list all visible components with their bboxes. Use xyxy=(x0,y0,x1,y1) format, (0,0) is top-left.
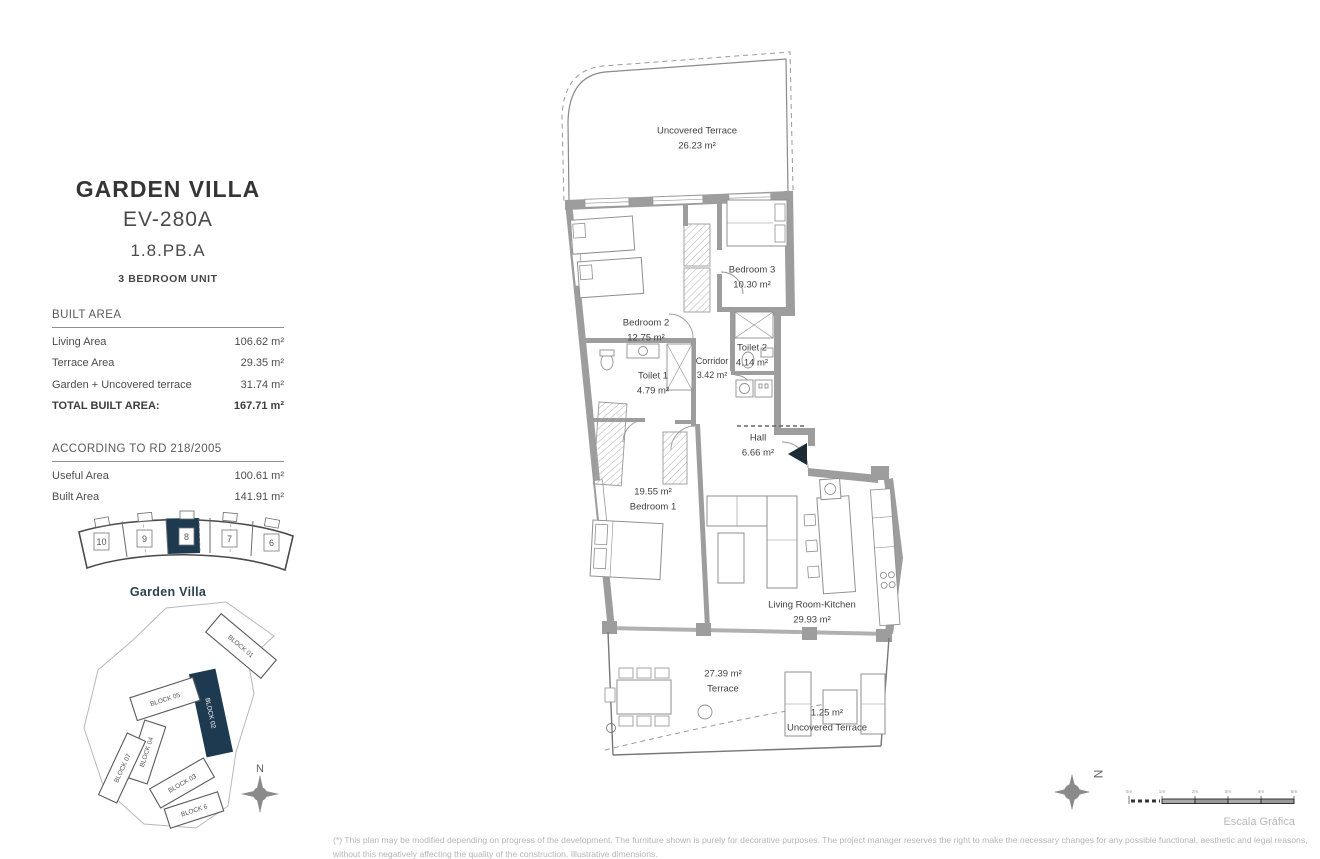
room-label-toilet1: Toilet 1 4.79 m² xyxy=(637,369,669,398)
table-row: Living Area 106.62 m² xyxy=(52,328,284,350)
svg-text:N: N xyxy=(256,763,264,775)
living-sofa xyxy=(707,496,797,588)
rd-area-header: ACCORDING TO RD 218/2005 xyxy=(52,443,284,462)
room-label-bedroom3: Bedroom 3 10.30 m² xyxy=(729,263,775,292)
scale-bar: 0m 1m 2m 3m 4m 5m Escala Gráfica xyxy=(1125,785,1300,833)
row-value: 106.62 m² xyxy=(234,335,284,350)
unit-number: 6 xyxy=(269,538,274,548)
strip-caption: Garden Villa xyxy=(52,585,284,599)
row-label: Garden + Uncovered terrace xyxy=(52,378,192,393)
room-label-uncovered-terrace-bottom: 1.25 m² Uncovered Terrace xyxy=(787,706,867,735)
laundry-units xyxy=(736,380,772,397)
site-plan: BLOCK 01 BLOCK 02 BLOCK 05 BLOCK 04 BLOC… xyxy=(78,600,313,848)
site-block: BLOCK 05 xyxy=(130,677,200,720)
site-block: BLOCK 01 xyxy=(206,614,277,679)
rd-area-table: ACCORDING TO RD 218/2005 Useful Area 100… xyxy=(52,443,284,505)
unit-number: 7 xyxy=(227,534,232,544)
kitchen-island xyxy=(802,478,856,595)
bedroom2-beds xyxy=(570,216,643,299)
table-row: Terrace Area 29.35 m² xyxy=(52,350,284,372)
row-label: Terrace Area xyxy=(52,356,114,371)
footnote: (*) This plan may be modified depending … xyxy=(333,834,1320,859)
room-label-bedroom1: 19.55 m² Bedroom 1 xyxy=(630,485,676,514)
table-row-total: TOTAL BUILT AREA: 167.71 m² xyxy=(52,393,284,415)
svg-text:1m: 1m xyxy=(1159,789,1166,795)
built-area-table: BUILT AREA Living Area 106.62 m² Terrace… xyxy=(52,309,284,414)
unit-number: 9 xyxy=(142,534,147,544)
row-label: Built Area xyxy=(52,490,99,505)
row-label: Useful Area xyxy=(52,469,109,484)
unit-type: 3 BEDROOM UNIT xyxy=(52,273,284,285)
terrace-dining-set xyxy=(605,668,712,726)
room-label-living-kitchen: Living Room-Kitchen 29.93 m² xyxy=(768,598,856,627)
room-label-uncovered-terrace-top: Uncovered Terrace 26.23 m² xyxy=(657,124,737,153)
svg-text:2m: 2m xyxy=(1192,789,1199,795)
row-value: 29.35 m² xyxy=(241,356,284,371)
table-row: Useful Area 100.61 m² xyxy=(52,462,284,484)
svg-text:4m: 4m xyxy=(1258,789,1265,795)
row-label: Living Area xyxy=(52,335,106,350)
svg-text:0m: 0m xyxy=(1126,789,1133,795)
room-label-bedroom2: Bedroom 2 12.75 m² xyxy=(623,316,669,345)
page-title: GARDEN VILLA xyxy=(52,176,284,203)
entrance-arrow-icon xyxy=(788,443,807,465)
table-row: Built Area 141.91 m² xyxy=(52,484,284,506)
room-label-toilet2: Toilet 2 4.14 m² xyxy=(736,341,768,370)
room-label-hall: Hall 6.66 m² xyxy=(742,431,774,460)
compass-icon xyxy=(1054,774,1090,810)
compass-label: N xyxy=(1091,770,1105,779)
plan-compass: N xyxy=(1040,758,1115,823)
bedroom3-bed xyxy=(727,200,787,246)
room-label-corridor: Corridor 3.42 m² xyxy=(696,355,729,383)
row-value: 141.91 m² xyxy=(234,490,284,505)
unit-strip-diagram: 10 9 8 7 6 xyxy=(73,508,301,580)
unit-ref: 1.8.PB.A xyxy=(52,241,284,261)
room-label-terrace: 27.39 m² Terrace xyxy=(704,667,742,696)
title-block: GARDEN VILLA EV-280A 1.8.PB.A 3 BEDROOM … xyxy=(52,176,284,285)
row-value: 100.61 m² xyxy=(234,469,284,484)
plan-sheet: GARDEN VILLA EV-280A 1.8.PB.A 3 BEDROOM … xyxy=(0,0,1320,859)
row-label: TOTAL BUILT AREA: xyxy=(52,399,160,414)
built-area-header: BUILT AREA xyxy=(52,309,284,328)
bedroom1-bed xyxy=(590,520,663,580)
coffee-table xyxy=(718,533,744,583)
scale-caption: Escala Gráfica xyxy=(1223,816,1295,828)
svg-text:5m: 5m xyxy=(1291,789,1298,795)
row-value: 31.74 m² xyxy=(241,378,284,393)
site-block-highlighted: BLOCK 02 xyxy=(190,669,233,757)
svg-text:3m: 3m xyxy=(1225,789,1232,795)
table-row: Garden + Uncovered terrace 31.74 m² xyxy=(52,371,284,393)
unit-code: EV-280A xyxy=(52,208,284,232)
row-value: 167.71 m² xyxy=(234,399,284,414)
compass-icon: N xyxy=(241,763,279,813)
unit-number: 10 xyxy=(96,537,106,547)
unit-number: 8 xyxy=(184,532,189,542)
